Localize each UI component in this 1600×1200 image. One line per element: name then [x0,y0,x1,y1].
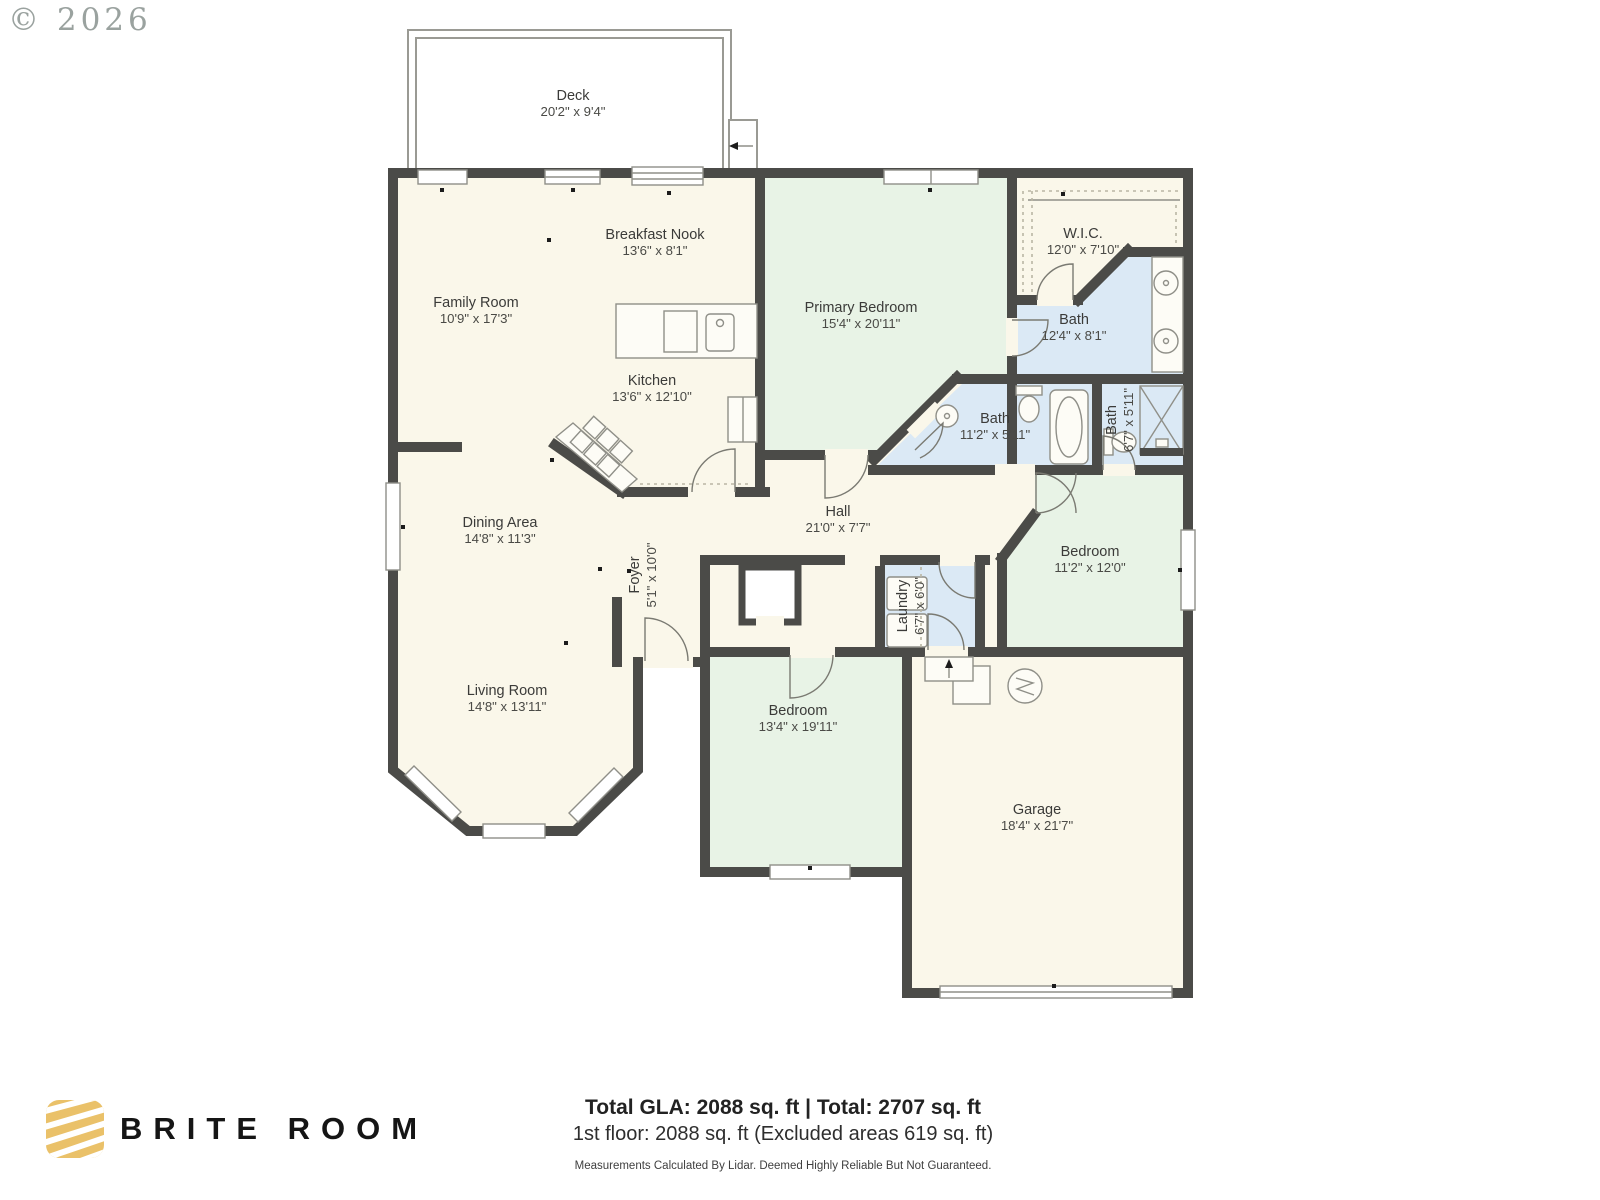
svg-text:Bath: Bath [1104,405,1120,435]
room-label-living-room: Living Room14'8" x 13'11" [467,683,548,714]
svg-text:Deck: Deck [556,88,590,104]
svg-text:13'4" x 19'11": 13'4" x 19'11" [759,719,838,734]
svg-text:Living Room: Living Room [467,683,548,699]
svg-text:Foyer: Foyer [627,556,643,593]
bedroom-lower-floor [710,657,902,867]
area-summary: Total GLA: 2088 sq. ft | Total: 2707 sq.… [383,1082,1183,1172]
floor-plan: Deck20'2" x 9'4" Family Room10'9" x 17'3… [0,0,1600,1200]
brand-logo: BRITE ROOM [46,1100,428,1158]
total-gla-line: Total GLA: 2088 sq. ft | Total: 2707 sq.… [383,1096,1183,1120]
svg-text:Bath: Bath [980,411,1010,427]
svg-text:Breakfast Nook: Breakfast Nook [605,227,705,243]
svg-text:14'8" x 13'11": 14'8" x 13'11" [468,699,547,714]
svg-text:5'1" x 10'0": 5'1" x 10'0" [644,542,659,607]
svg-text:Laundry: Laundry [895,579,911,632]
room-label-bedroom-lower: Bedroom13'4" x 19'11" [759,703,838,734]
svg-text:15'4" x 20'11": 15'4" x 20'11" [822,316,901,331]
svg-text:13'6" x 8'1": 13'6" x 8'1" [623,243,688,258]
svg-text:10'9" x 17'3": 10'9" x 17'3" [440,311,513,326]
room-label-family-room: Family Room10'9" x 17'3" [433,295,518,326]
svg-text:Family Room: Family Room [433,295,518,311]
brand-logo-icon [46,1100,104,1158]
floor-plan-svg: Deck20'2" x 9'4" Family Room10'9" x 17'3… [0,0,1600,1200]
svg-text:18'4" x 21'7": 18'4" x 21'7" [1001,818,1074,833]
svg-text:Bath: Bath [1059,312,1089,328]
svg-text:Garage: Garage [1013,802,1061,818]
toilet [1019,396,1039,422]
svg-text:11'2" x 12'0": 11'2" x 12'0" [1054,560,1126,575]
first-floor-line: 1st floor: 2088 sq. ft (Excluded areas 6… [383,1123,1183,1146]
room-label-bedroom-right: Bedroom11'2" x 12'0" [1054,544,1126,575]
sliding-door [632,167,703,185]
svg-text:Primary Bedroom: Primary Bedroom [805,300,918,316]
svg-text:12'4" x 8'1": 12'4" x 8'1" [1042,328,1107,343]
svg-text:Kitchen: Kitchen [628,373,676,389]
toilet-tank [1016,386,1042,395]
brand-name: BRITE ROOM [120,1111,428,1147]
svg-text:21'0" x 7'7": 21'0" x 7'7" [806,520,871,535]
svg-text:Bedroom: Bedroom [769,703,828,719]
svg-text:W.I.C.: W.I.C. [1063,226,1102,242]
svg-text:Hall: Hall [826,504,851,520]
svg-text:11'2" x 5'11": 11'2" x 5'11" [960,427,1031,442]
svg-text:6'7" x 6'0": 6'7" x 6'0" [912,577,927,635]
svg-text:Dining Area: Dining Area [463,515,539,531]
footer: BRITE ROOM Total GLA: 2088 sq. ft | Tota… [0,1082,1600,1200]
svg-text:20'2" x 9'4": 20'2" x 9'4" [541,104,606,119]
svg-text:13'6" x 12'10": 13'6" x 12'10" [612,389,692,404]
svg-text:14'8" x 11'3": 14'8" x 11'3" [464,531,536,546]
disclaimer-text: Measurements Calculated By Lidar. Deemed… [383,1160,1183,1172]
room-label-dining-area: Dining Area14'8" x 11'3" [463,515,539,546]
svg-text:6'7" x 5'11": 6'7" x 5'11" [1121,388,1136,452]
svg-text:12'0" x 7'10": 12'0" x 7'10" [1047,242,1120,257]
primary-bath-fixtures [1152,257,1183,372]
svg-text:Bedroom: Bedroom [1061,544,1120,560]
foyer-closet [742,567,798,622]
